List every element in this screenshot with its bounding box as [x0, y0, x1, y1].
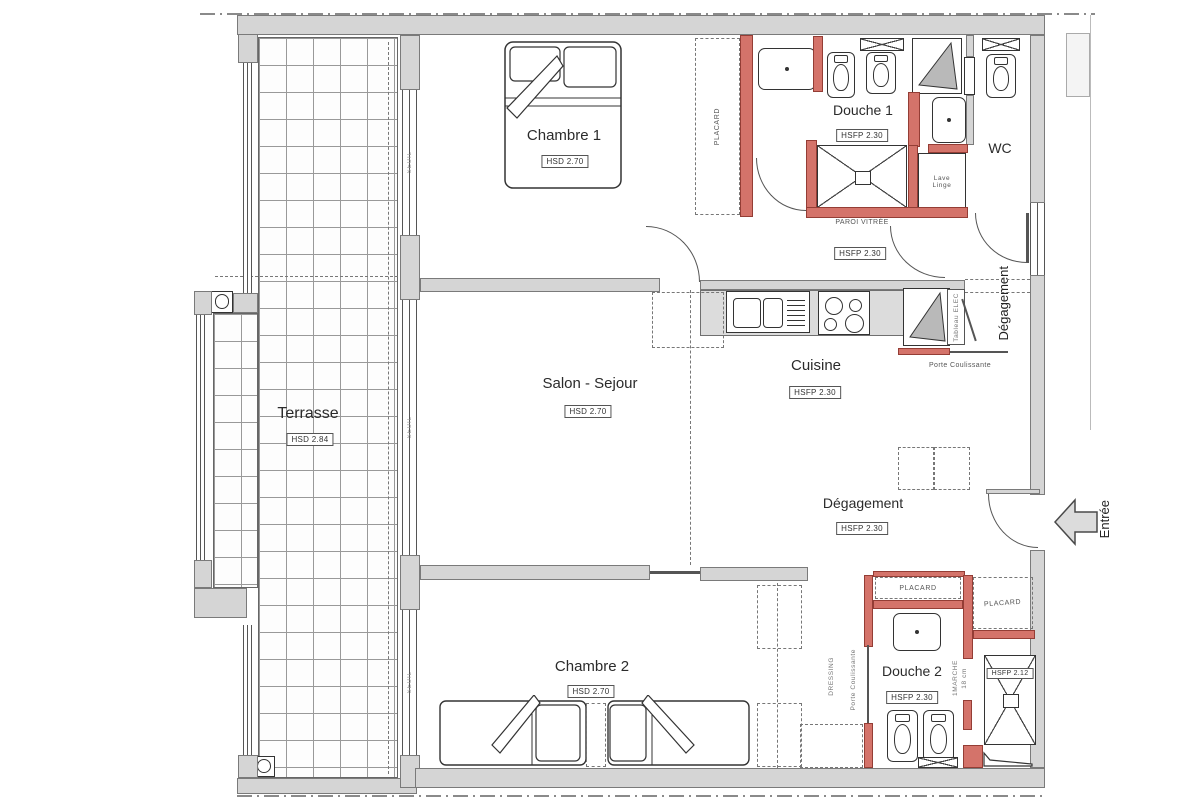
chambre2-slider-wall-top: [864, 575, 873, 647]
tableau-elec-wrap: Tableau ELEC: [947, 289, 965, 345]
salon-cuisine-boundary: [690, 290, 691, 565]
terrace-overhang-dashed: [388, 42, 389, 774]
douche2-placard2-wall: [973, 630, 1035, 639]
wc-vent-grille: [982, 38, 1020, 51]
dressing-closet: [757, 585, 802, 649]
seuil-label-top: SEUIL: [407, 151, 413, 173]
placard-label-douche2-a: PLACARD: [899, 585, 936, 592]
room-label-chambre1: Chambre 1: [527, 127, 601, 144]
terrace-bottom-wall: [237, 778, 417, 794]
east-window: [1030, 203, 1045, 275]
douche2-radiator: [982, 750, 1034, 768]
porte-coulissante-wrap-ch2: Porte Coulissante: [848, 648, 859, 712]
lave-linge-closet: Lave Linge: [918, 153, 966, 210]
south-wall: [415, 768, 1045, 788]
room-label-douche1: Douche 1: [833, 102, 893, 118]
entrance-door-swing: [988, 494, 1038, 548]
partition-douche1-a: [813, 36, 823, 92]
marche-label-wrap-1: 1MARCHE: [951, 652, 960, 704]
partition-placard: [740, 35, 753, 217]
dressing-label-wrap: DRESSING: [824, 650, 838, 702]
partition-douche1-b: [908, 92, 920, 147]
marche-label-2: 18 cm: [961, 668, 968, 689]
room-label-salon: Salon - Sejour: [542, 375, 637, 392]
chambre2-wardrobe: [757, 703, 802, 767]
marche-label-1: 1MARCHE: [952, 660, 959, 696]
kitchen-cooktop: [818, 291, 870, 335]
seuil-label-middle: SEUIL: [407, 416, 413, 438]
degagement-closet-1: [898, 447, 934, 490]
salon-chambre2-wall-a: [420, 565, 650, 580]
sink-basin-1: [733, 298, 761, 328]
height-label-chambre1: HSD 2.70: [541, 155, 588, 168]
wc-wall-b: [966, 95, 974, 145]
chambre2-slider-panel: [867, 645, 869, 725]
burner-4: [845, 314, 864, 333]
douche2-toilet-2: [923, 710, 954, 762]
height-label-cuisine: HSFP 2.30: [789, 386, 841, 399]
height-label-degagement: HSFP 2.30: [836, 522, 888, 535]
terrace-bulge-corner-bl: [194, 560, 212, 588]
east-wall-2: [1030, 275, 1045, 495]
partition-paroi-vitree: [806, 207, 968, 218]
room-label-degagement: Dégagement: [823, 495, 903, 511]
placard-label-douche2-b: PLACARD: [984, 598, 1022, 608]
entree-arrow-icon: [1053, 496, 1099, 548]
lave-linge-label-2: Linge: [933, 182, 952, 189]
kitchen-sink-unit: [726, 291, 810, 333]
douche2-placard2: PLACARD: [973, 577, 1033, 629]
douche2-wall-low: [963, 700, 972, 730]
douche2-corner-block: [963, 745, 983, 768]
tableau-elec-label: Tableau ELEC: [953, 293, 960, 342]
salon-chambre2-wall-b: [700, 567, 808, 581]
height-label-salon: HSD 2.70: [564, 405, 611, 418]
douche2-toilet-1: [887, 710, 918, 762]
burner-3: [824, 318, 837, 331]
entree-label-wrap: Entrée: [1096, 490, 1112, 548]
douche1-door-swing: [756, 158, 806, 211]
dressing-floor-zone: [800, 724, 863, 768]
corridor-ceiling-dash-1: [965, 279, 1030, 280]
bay-window-top: SEUIL: [402, 90, 417, 235]
chambre2-nightstand: [586, 703, 606, 767]
douche2-vent-grille: [918, 757, 958, 768]
chambre1-placard: PLACARD: [695, 38, 740, 215]
corridor-ceiling-dash-2: [965, 292, 1030, 293]
east-wall-1: [1030, 35, 1045, 203]
terrace-floor-tiles-bulge: [213, 313, 258, 588]
neighbor-balcony: [1066, 33, 1090, 97]
terrace-railing-top: [243, 63, 252, 293]
corridor-label-wrap: Dégagement: [995, 260, 1011, 346]
room-label-corridor: Dégagement: [996, 266, 1011, 340]
chambre2-slider-wall-bottom: [864, 723, 873, 768]
bay-window-bottom: SEUIL: [402, 610, 417, 755]
dressing-boundary-dash: [777, 583, 778, 768]
west-wall-2: [400, 235, 420, 300]
floor-plan: Terrasse HSD 2.84 SEUIL SEUIL SEUIL: [0, 0, 1200, 800]
douche1-vanity2: [932, 97, 966, 143]
room-label-cuisine: Cuisine: [791, 357, 841, 374]
wc-door-swing: [975, 213, 1027, 263]
single-bed-left: [438, 695, 588, 768]
neighbor-edge-line: [1090, 15, 1091, 430]
kitchen-sliding-rail: [950, 351, 1008, 353]
douche1-vent-grille: [860, 38, 904, 51]
wc-door-leaf: [1026, 213, 1029, 263]
west-wall-1: [400, 35, 420, 90]
douche1-vanity: [758, 48, 816, 90]
douche2-placard1: PLACARD: [875, 577, 961, 599]
placard-label-chambre1: PLACARD: [714, 108, 721, 145]
height-label-douche1: HSFP 2.30: [836, 129, 888, 142]
douche1-corner-unit: [912, 38, 962, 94]
terrace-drain-top: [211, 291, 233, 313]
douche1-toilet: [827, 52, 855, 98]
north-wall: [237, 15, 1045, 35]
dressing-label: DRESSING: [828, 657, 835, 696]
kitchen-sliding-door: [898, 348, 950, 355]
bay-window-middle: SEUIL: [402, 300, 417, 555]
chambre1-salon-wall: [420, 278, 660, 292]
partition-wc: [928, 144, 968, 153]
terrace-railing-bulge: [196, 315, 205, 560]
marche-label-wrap-2: 18 cm: [960, 655, 969, 701]
hall-door-swing: [890, 226, 945, 278]
sink-basin-2: [763, 298, 783, 328]
entrance-door-leaf: [986, 489, 1040, 494]
kitchen-tall-cabinet: [903, 288, 950, 346]
chambre1-door-swing: [646, 226, 700, 282]
partition-shower1-left: [806, 140, 817, 217]
terrace-bulge-corner-tl: [194, 291, 212, 315]
height-label-shower2: HSFP 2.12: [987, 668, 1034, 679]
douche2-placard1-wall: [873, 600, 963, 609]
terrace-bulge-stub-top: [233, 293, 258, 313]
porte-coulissante-label-ch2: Porte Coulissante: [850, 649, 857, 711]
porte-coulissante-label-kitchen: Porte Coulissante: [929, 362, 991, 369]
room-label-wc: WC: [988, 140, 1011, 156]
height-label-terrasse: HSD 2.84: [286, 433, 333, 446]
room-label-terrasse: Terrasse: [277, 405, 338, 423]
chambre2-pocket-door: [650, 571, 700, 574]
height-label-douche2: HSFP 2.30: [886, 691, 938, 704]
wc-wall-a: [966, 35, 974, 57]
burner-2: [849, 299, 862, 312]
douche1-shower-tray: [817, 145, 907, 208]
lave-linge-label-1: Lave: [934, 175, 951, 182]
kitchen-appliance-space: [652, 292, 724, 348]
wc-duct: [964, 57, 975, 95]
terrace-corner-bottom: [238, 755, 258, 778]
terrace-bulge-step: [194, 588, 247, 618]
entree-label: Entrée: [1097, 500, 1112, 538]
douche1-bidet: [866, 52, 896, 94]
room-label-chambre2: Chambre 2: [555, 658, 629, 675]
paroi-vitree-label: PAROI VITRÉE: [835, 219, 888, 226]
sink-drainer: [787, 300, 805, 326]
douche2-vanity: [893, 613, 941, 651]
property-line-bottom: [237, 795, 1045, 797]
seuil-label-bottom: SEUIL: [407, 671, 413, 693]
height-label-hall: HSFP 2.30: [834, 247, 886, 260]
single-bed-right: [606, 695, 751, 768]
room-label-douche2: Douche 2: [882, 663, 942, 679]
burner-1: [825, 297, 843, 315]
degagement-closet-2: [934, 447, 970, 490]
west-wall-3: [400, 555, 420, 610]
douche2-center-wall: [963, 575, 973, 659]
terrace-railing-bottom: [243, 625, 252, 755]
wc-toilet: [986, 54, 1016, 98]
